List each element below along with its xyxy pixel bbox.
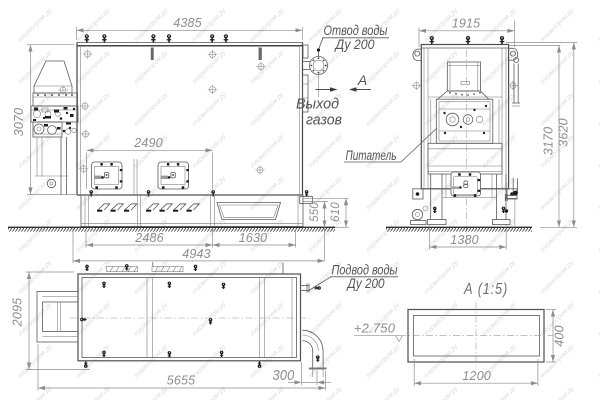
- svg-text:4385: 4385: [173, 16, 202, 30]
- svg-text:1200: 1200: [462, 369, 491, 383]
- svg-text:А (1:5): А (1:5): [463, 281, 508, 298]
- svg-text:Питатель: Питатель: [346, 148, 397, 163]
- svg-text:2490: 2490: [133, 136, 163, 150]
- svg-text:Ду 200: Ду 200: [346, 276, 385, 291]
- svg-text:3070: 3070: [12, 108, 26, 137]
- svg-text:4943: 4943: [182, 247, 211, 261]
- svg-text:+2.750: +2.750: [354, 321, 396, 336]
- svg-text:А: А: [357, 72, 367, 88]
- svg-text:2095: 2095: [11, 298, 25, 328]
- svg-text:1380: 1380: [450, 233, 479, 247]
- svg-text:Отвод воды: Отвод воды: [324, 23, 388, 38]
- svg-text:400: 400: [553, 325, 567, 346]
- svg-text:1630: 1630: [239, 231, 268, 245]
- svg-text:Выход: Выход: [296, 97, 339, 113]
- svg-text:3620: 3620: [557, 118, 571, 147]
- svg-text:Ду 200: Ду 200: [334, 37, 375, 52]
- svg-text:2486: 2486: [134, 231, 164, 245]
- svg-text:5655: 5655: [167, 374, 196, 388]
- svg-text:300: 300: [273, 367, 295, 384]
- svg-text:газов: газов: [306, 113, 342, 129]
- svg-text:550: 550: [309, 202, 321, 222]
- svg-text:610: 610: [330, 202, 342, 222]
- svg-text:1915: 1915: [452, 17, 481, 31]
- svg-text:3170: 3170: [542, 127, 556, 156]
